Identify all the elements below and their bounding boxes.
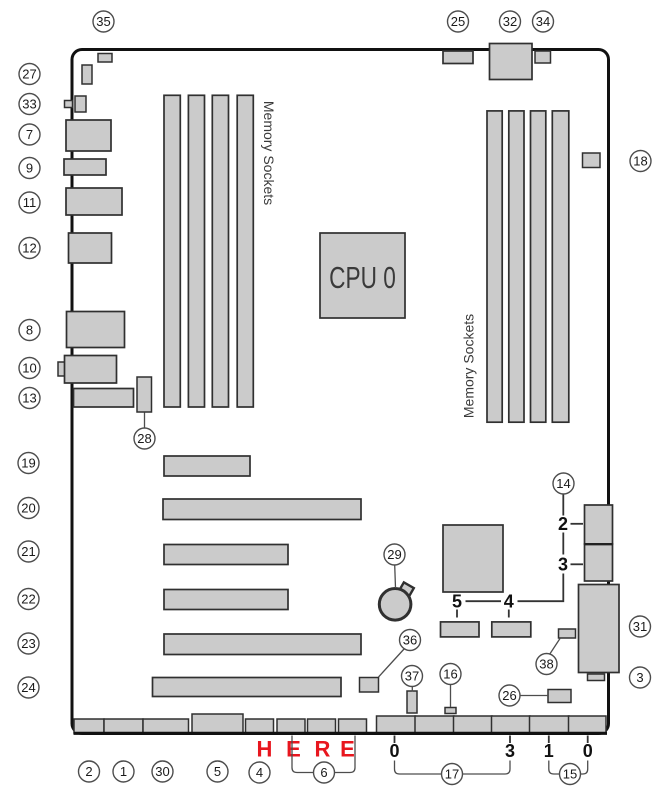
svg-text:34: 34: [536, 14, 550, 29]
svg-text:4: 4: [504, 592, 514, 612]
svg-text:24: 24: [21, 680, 35, 695]
svg-text:38: 38: [539, 657, 553, 672]
svg-text:35: 35: [96, 14, 110, 29]
svg-text:12: 12: [22, 241, 36, 256]
svg-text:E: E: [286, 736, 301, 761]
svg-text:6: 6: [320, 765, 327, 780]
svg-text:36: 36: [403, 633, 417, 648]
svg-text:1: 1: [120, 764, 127, 779]
svg-text:0: 0: [583, 741, 593, 761]
svg-text:8: 8: [26, 323, 33, 338]
svg-text:7: 7: [26, 127, 33, 142]
svg-text:14: 14: [556, 476, 570, 491]
svg-text:28: 28: [137, 431, 151, 446]
svg-text:R: R: [315, 736, 331, 761]
svg-text:29: 29: [387, 547, 401, 562]
svg-text:15: 15: [563, 767, 577, 782]
svg-text:CPU 0: CPU 0: [329, 259, 396, 294]
svg-text:33: 33: [22, 97, 36, 112]
svg-text:30: 30: [155, 764, 169, 779]
svg-text:16: 16: [443, 667, 457, 682]
svg-text:26: 26: [502, 688, 516, 703]
svg-text:31: 31: [633, 619, 647, 634]
svg-text:27: 27: [22, 67, 36, 82]
svg-text:10: 10: [22, 361, 36, 376]
svg-text:5: 5: [452, 592, 462, 612]
svg-text:13: 13: [22, 391, 36, 406]
svg-text:4: 4: [256, 765, 263, 780]
svg-text:E: E: [340, 736, 355, 761]
svg-text:3: 3: [636, 670, 643, 685]
svg-text:23: 23: [21, 636, 35, 651]
svg-text:0: 0: [389, 741, 399, 761]
svg-text:3: 3: [505, 741, 515, 761]
svg-text:25: 25: [451, 14, 465, 29]
svg-text:32: 32: [503, 14, 517, 29]
svg-text:2: 2: [558, 514, 568, 534]
svg-text:18: 18: [633, 154, 647, 169]
svg-text:1: 1: [544, 741, 554, 761]
svg-text:17: 17: [445, 767, 459, 782]
svg-text:37: 37: [405, 669, 419, 684]
svg-text:Memory Sockets: Memory Sockets: [261, 101, 277, 205]
svg-text:22: 22: [21, 592, 35, 607]
svg-text:H: H: [257, 736, 273, 761]
svg-text:Memory Sockets: Memory Sockets: [461, 314, 477, 418]
svg-text:2: 2: [85, 764, 92, 779]
svg-text:21: 21: [21, 544, 35, 559]
svg-text:3: 3: [558, 554, 568, 574]
svg-text:19: 19: [21, 456, 35, 471]
svg-text:9: 9: [26, 161, 33, 176]
svg-text:5: 5: [214, 764, 221, 779]
svg-text:20: 20: [21, 501, 35, 516]
svg-text:11: 11: [23, 195, 37, 210]
